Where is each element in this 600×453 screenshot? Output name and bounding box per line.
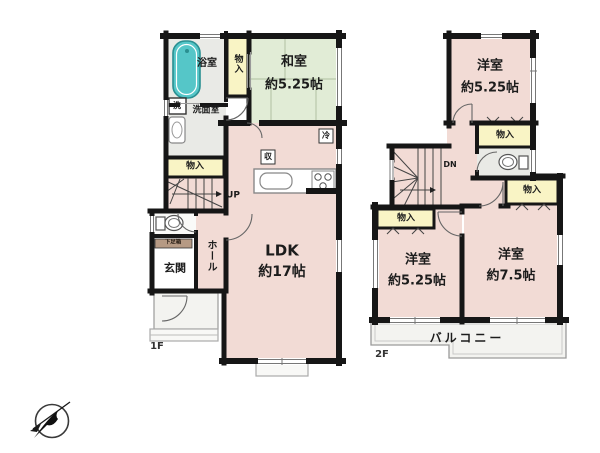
floor-label-2f: 2F bbox=[375, 350, 389, 360]
closet-2f-c-label: 物入 bbox=[523, 187, 541, 196]
bedroom3-size: 約7.5帖 bbox=[486, 270, 535, 283]
entrance-label: 玄関 bbox=[164, 263, 186, 274]
shoe-box-label: 下足箱 bbox=[165, 240, 182, 246]
hall-label: ホール bbox=[205, 240, 215, 273]
washer-label: 洗 bbox=[173, 102, 181, 110]
floor-plan: 浴室 物入 和室 約5.25帖 洗 洗面室 物入 UP 下足箱 玄関 ホール L… bbox=[0, 0, 600, 453]
balcony-label: バルコニー bbox=[430, 332, 505, 344]
washroom-label: 洗面室 bbox=[192, 107, 219, 116]
japanese-room-size: 約5.25帖 bbox=[265, 79, 323, 92]
bedroom3-name: 洋室 bbox=[498, 249, 524, 262]
storage-label: 収 bbox=[264, 153, 272, 161]
bedroom2-size: 約5.25帖 bbox=[388, 275, 446, 288]
staircase-down bbox=[392, 146, 447, 208]
fridge-label: 冷 bbox=[322, 132, 330, 140]
bath-label: 浴室 bbox=[197, 59, 217, 69]
bedroom2-name: 洋室 bbox=[405, 254, 431, 267]
closet-2f-b-label: 物入 bbox=[397, 215, 415, 224]
toilet-icon bbox=[156, 216, 183, 231]
ldk-name: LDK bbox=[265, 244, 299, 259]
north-arrow-icon bbox=[30, 402, 70, 438]
closet-bath-side-label: 物入 bbox=[233, 54, 242, 74]
bedroom1-size: 約5.25帖 bbox=[461, 82, 519, 95]
closet-2f-a-label: 物入 bbox=[496, 132, 514, 141]
bedroom1-name: 洋室 bbox=[477, 60, 503, 73]
bedroom1 bbox=[449, 36, 533, 123]
toilet-2f-icon bbox=[499, 155, 528, 170]
ldk-size: 約17帖 bbox=[258, 265, 305, 279]
japanese-room-name: 和室 bbox=[281, 56, 307, 69]
stairs-up-label: UP bbox=[226, 192, 240, 201]
floor-label-1f: 1F bbox=[150, 342, 164, 352]
vanity-sink bbox=[169, 117, 185, 143]
bedroom3 bbox=[464, 205, 560, 320]
stairs-down-label: DN bbox=[443, 161, 456, 169]
porch bbox=[154, 293, 218, 329]
kitchen-sink bbox=[260, 173, 292, 189]
kitchen-counter bbox=[254, 169, 336, 194]
closet-hall-label: 物入 bbox=[186, 163, 204, 172]
bath-faucet bbox=[185, 49, 189, 53]
